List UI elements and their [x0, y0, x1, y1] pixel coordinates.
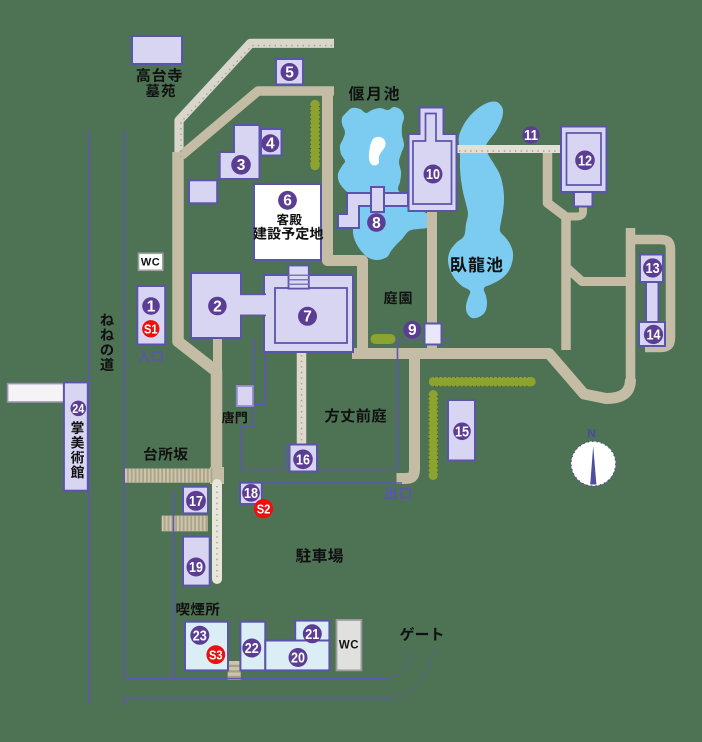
svg-text:N: N [587, 427, 596, 441]
svg-text:15: 15 [455, 424, 469, 440]
svg-text:7: 7 [303, 309, 312, 326]
svg-text:9: 9 [408, 322, 417, 339]
svg-text:19: 19 [189, 560, 203, 576]
svg-text:11: 11 [524, 128, 538, 144]
svg-text:23: 23 [193, 628, 207, 644]
svg-text:8: 8 [372, 215, 381, 232]
svg-text:S3: S3 [209, 648, 223, 663]
svg-text:16: 16 [296, 452, 310, 468]
svg-text:5: 5 [285, 64, 294, 81]
svg-text:21: 21 [305, 627, 319, 643]
svg-text:13: 13 [646, 261, 660, 277]
svg-text:14: 14 [647, 328, 661, 344]
svg-text:18: 18 [244, 486, 258, 502]
svg-text:24: 24 [72, 401, 85, 416]
svg-text:WC: WC [141, 257, 160, 269]
svg-text:2: 2 [213, 298, 222, 315]
svg-text:17: 17 [189, 494, 203, 510]
svg-text:1: 1 [147, 298, 156, 315]
svg-text:20: 20 [291, 651, 305, 667]
svg-text:22: 22 [245, 641, 259, 657]
svg-text:10: 10 [426, 167, 440, 183]
svg-text:3: 3 [237, 157, 246, 174]
svg-text:6: 6 [283, 193, 292, 210]
svg-text:S1: S1 [144, 322, 158, 337]
svg-text:WC: WC [339, 640, 359, 652]
svg-text:S2: S2 [257, 502, 271, 517]
svg-text:12: 12 [578, 153, 592, 169]
svg-text:4: 4 [266, 136, 275, 153]
